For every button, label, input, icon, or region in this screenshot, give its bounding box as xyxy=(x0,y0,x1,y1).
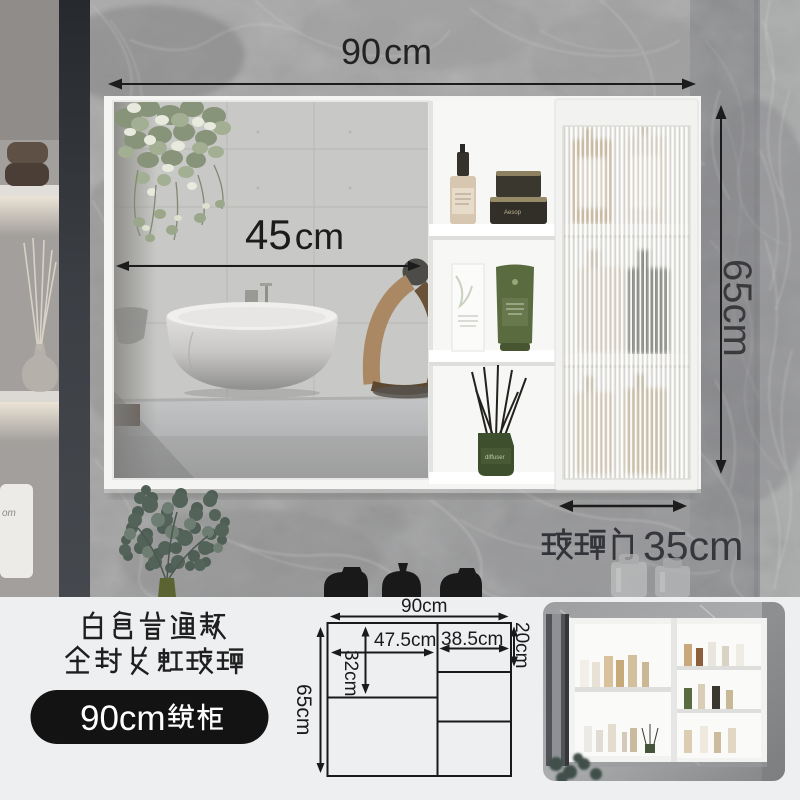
svg-text:90cm: 90cm xyxy=(80,699,166,738)
svg-text:20cm: 20cm xyxy=(511,622,532,668)
svg-text:35cm: 35cm xyxy=(643,523,743,569)
svg-text:90cm: 90cm xyxy=(341,31,432,72)
svg-text:Aesop: Aesop xyxy=(504,210,522,216)
svg-text:65cm: 65cm xyxy=(715,259,759,357)
svg-text:38.5cm: 38.5cm xyxy=(441,629,503,650)
svg-text:diffuser: diffuser xyxy=(485,455,505,461)
svg-text:om: om xyxy=(2,508,16,519)
svg-text:47.5cm: 47.5cm xyxy=(374,630,436,651)
svg-text:45cm: 45cm xyxy=(245,211,344,258)
svg-text:90cm: 90cm xyxy=(401,596,447,617)
svg-text:65cm: 65cm xyxy=(292,684,315,735)
svg-text:32cm: 32cm xyxy=(340,650,361,696)
